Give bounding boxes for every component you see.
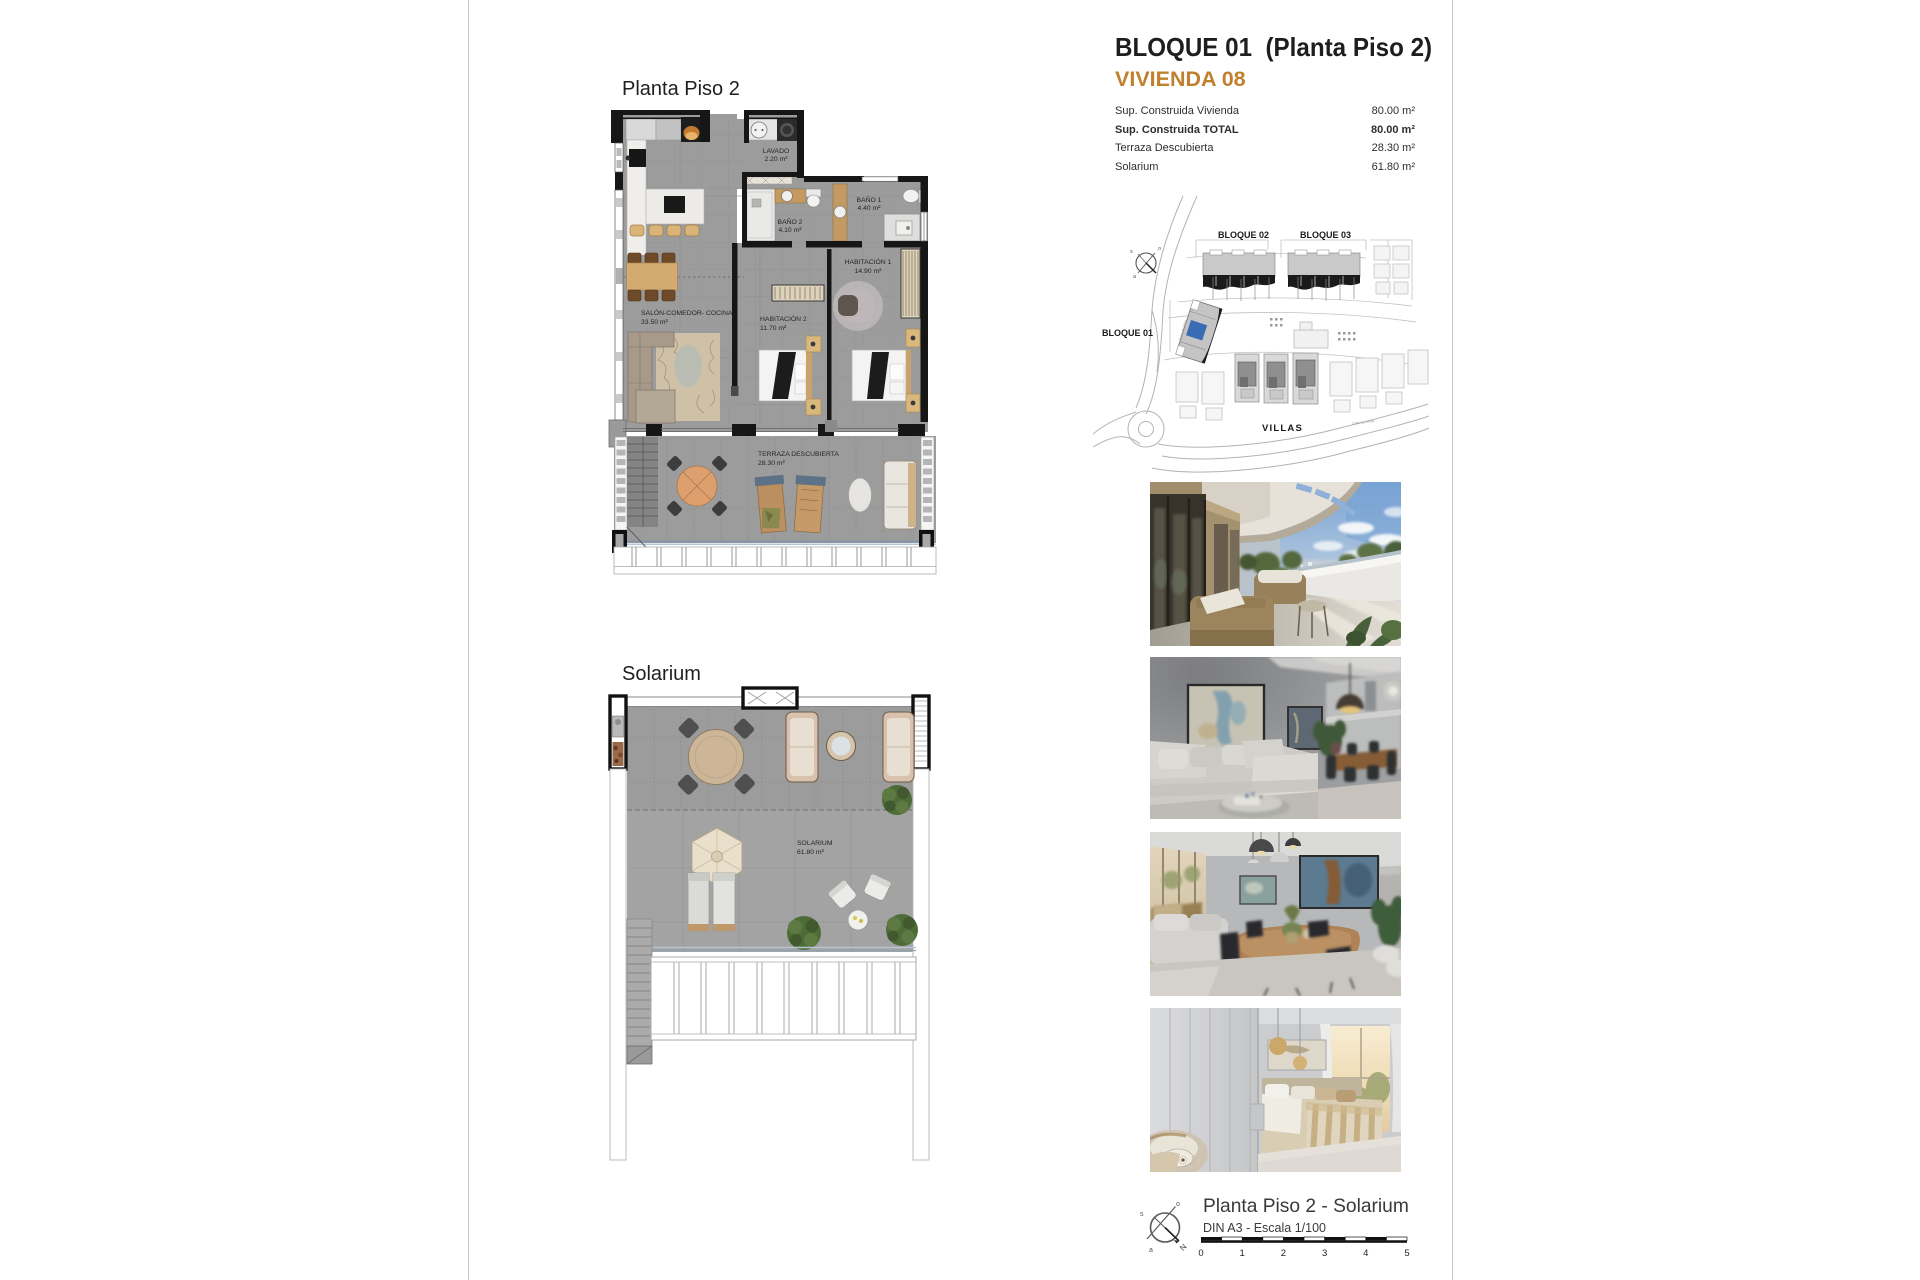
svg-text:o: o bbox=[1176, 1201, 1180, 1208]
svg-text:4.10 m²: 4.10 m² bbox=[778, 227, 802, 234]
svg-text:33.50 m²: 33.50 m² bbox=[641, 319, 669, 326]
svg-text:4.40 m²: 4.40 m² bbox=[857, 205, 881, 212]
svg-text:s: s bbox=[1130, 249, 1133, 255]
svg-text:a: a bbox=[1133, 274, 1137, 280]
svg-text:TERRAZA DESCUBIERTA: TERRAZA DESCUBIERTA bbox=[758, 451, 839, 458]
svg-text:HABITACIÓN 2: HABITACIÓN 2 bbox=[760, 314, 807, 323]
svg-text:HABITACIÓN 1: HABITACIÓN 1 bbox=[845, 257, 892, 266]
svg-text:11.70 m²: 11.70 m² bbox=[760, 325, 787, 332]
svg-text:28.30 m²: 28.30 m² bbox=[758, 460, 786, 467]
svg-text:BAÑO 1: BAÑO 1 bbox=[857, 195, 882, 204]
svg-text:4: 4 bbox=[1363, 1248, 1368, 1259]
svg-text:s: s bbox=[1140, 1211, 1144, 1218]
svg-text:o: o bbox=[1158, 246, 1161, 252]
svg-text:2.20 m²: 2.20 m² bbox=[764, 156, 788, 163]
svg-text:a: a bbox=[1149, 1247, 1153, 1254]
svg-text:2: 2 bbox=[1281, 1248, 1286, 1259]
svg-text:3: 3 bbox=[1322, 1248, 1327, 1259]
svg-text:5: 5 bbox=[1404, 1248, 1409, 1259]
svg-text:VILLAS: VILLAS bbox=[1262, 423, 1303, 434]
svg-text:SALÓN-COMEDOR- COCINA: SALÓN-COMEDOR- COCINA bbox=[641, 308, 733, 317]
svg-text:N: N bbox=[1178, 1242, 1189, 1253]
svg-text:1: 1 bbox=[1240, 1248, 1245, 1259]
svg-text:Calle las Villas: Calle las Villas bbox=[1352, 419, 1375, 426]
svg-text:BAÑO 2: BAÑO 2 bbox=[778, 217, 803, 226]
svg-text:BLOQUE 02: BLOQUE 02 bbox=[1218, 230, 1269, 240]
svg-text:SOLARIUM: SOLARIUM bbox=[797, 840, 833, 847]
svg-text:61.80 m²: 61.80 m² bbox=[797, 849, 825, 856]
svg-text:BLOQUE 03: BLOQUE 03 bbox=[1300, 230, 1351, 240]
svg-text:14.90 m²: 14.90 m² bbox=[855, 268, 883, 275]
svg-text:LAVADO: LAVADO bbox=[763, 148, 790, 155]
svg-text:BLOQUE 01: BLOQUE 01 bbox=[1102, 328, 1153, 338]
svg-text:0: 0 bbox=[1198, 1248, 1203, 1259]
